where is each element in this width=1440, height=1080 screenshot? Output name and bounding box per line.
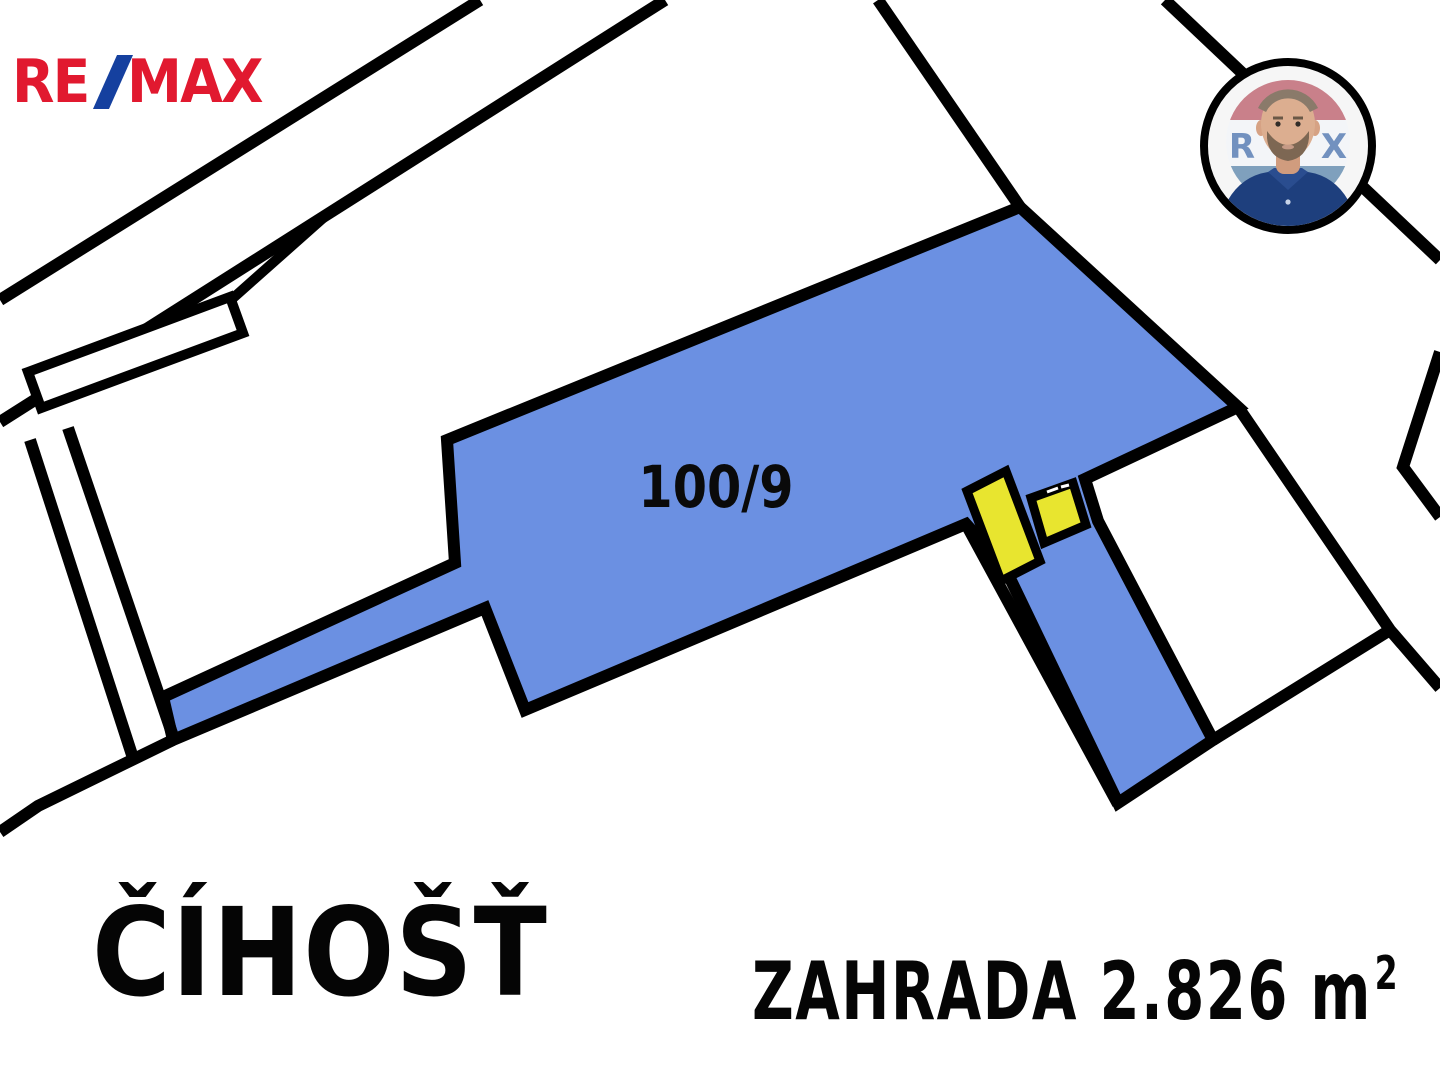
locality-title: ČÍHOŠŤ — [92, 892, 548, 1014]
road-east-kink — [1403, 352, 1440, 517]
area-caption: ZAHRADA 2.826 m2 — [752, 952, 1396, 1032]
agent-photo-badge: R X — [1196, 54, 1380, 238]
balloon-letter-r: R — [1229, 127, 1255, 167]
building-2-door-mark-2 — [1061, 485, 1069, 487]
road-east-line-2 — [1213, 630, 1390, 740]
parcel-number-label: 100/9 — [638, 453, 793, 521]
road-upper-left-line-1 — [0, 0, 480, 300]
lane-left-line-1 — [30, 440, 133, 758]
logo-re: RE — [12, 52, 89, 112]
boundary-southwest — [0, 740, 173, 832]
area-superscript: 2 — [1375, 946, 1399, 1000]
flyer: RE MAX 100/9 R X — [0, 0, 1440, 1080]
area-text: ZAHRADA 2.826 m — [752, 945, 1372, 1038]
agent-avatar: R X — [1196, 54, 1380, 238]
outbuilding-parcel — [28, 297, 243, 408]
lane-left-line-2 — [68, 428, 175, 742]
remax-logo: RE MAX — [12, 52, 274, 112]
balloon-letter-x: X — [1321, 127, 1347, 167]
road-north-line-1 — [878, 0, 1020, 207]
outbuilding-connector — [232, 212, 330, 299]
logo-max: MAX — [127, 52, 262, 112]
